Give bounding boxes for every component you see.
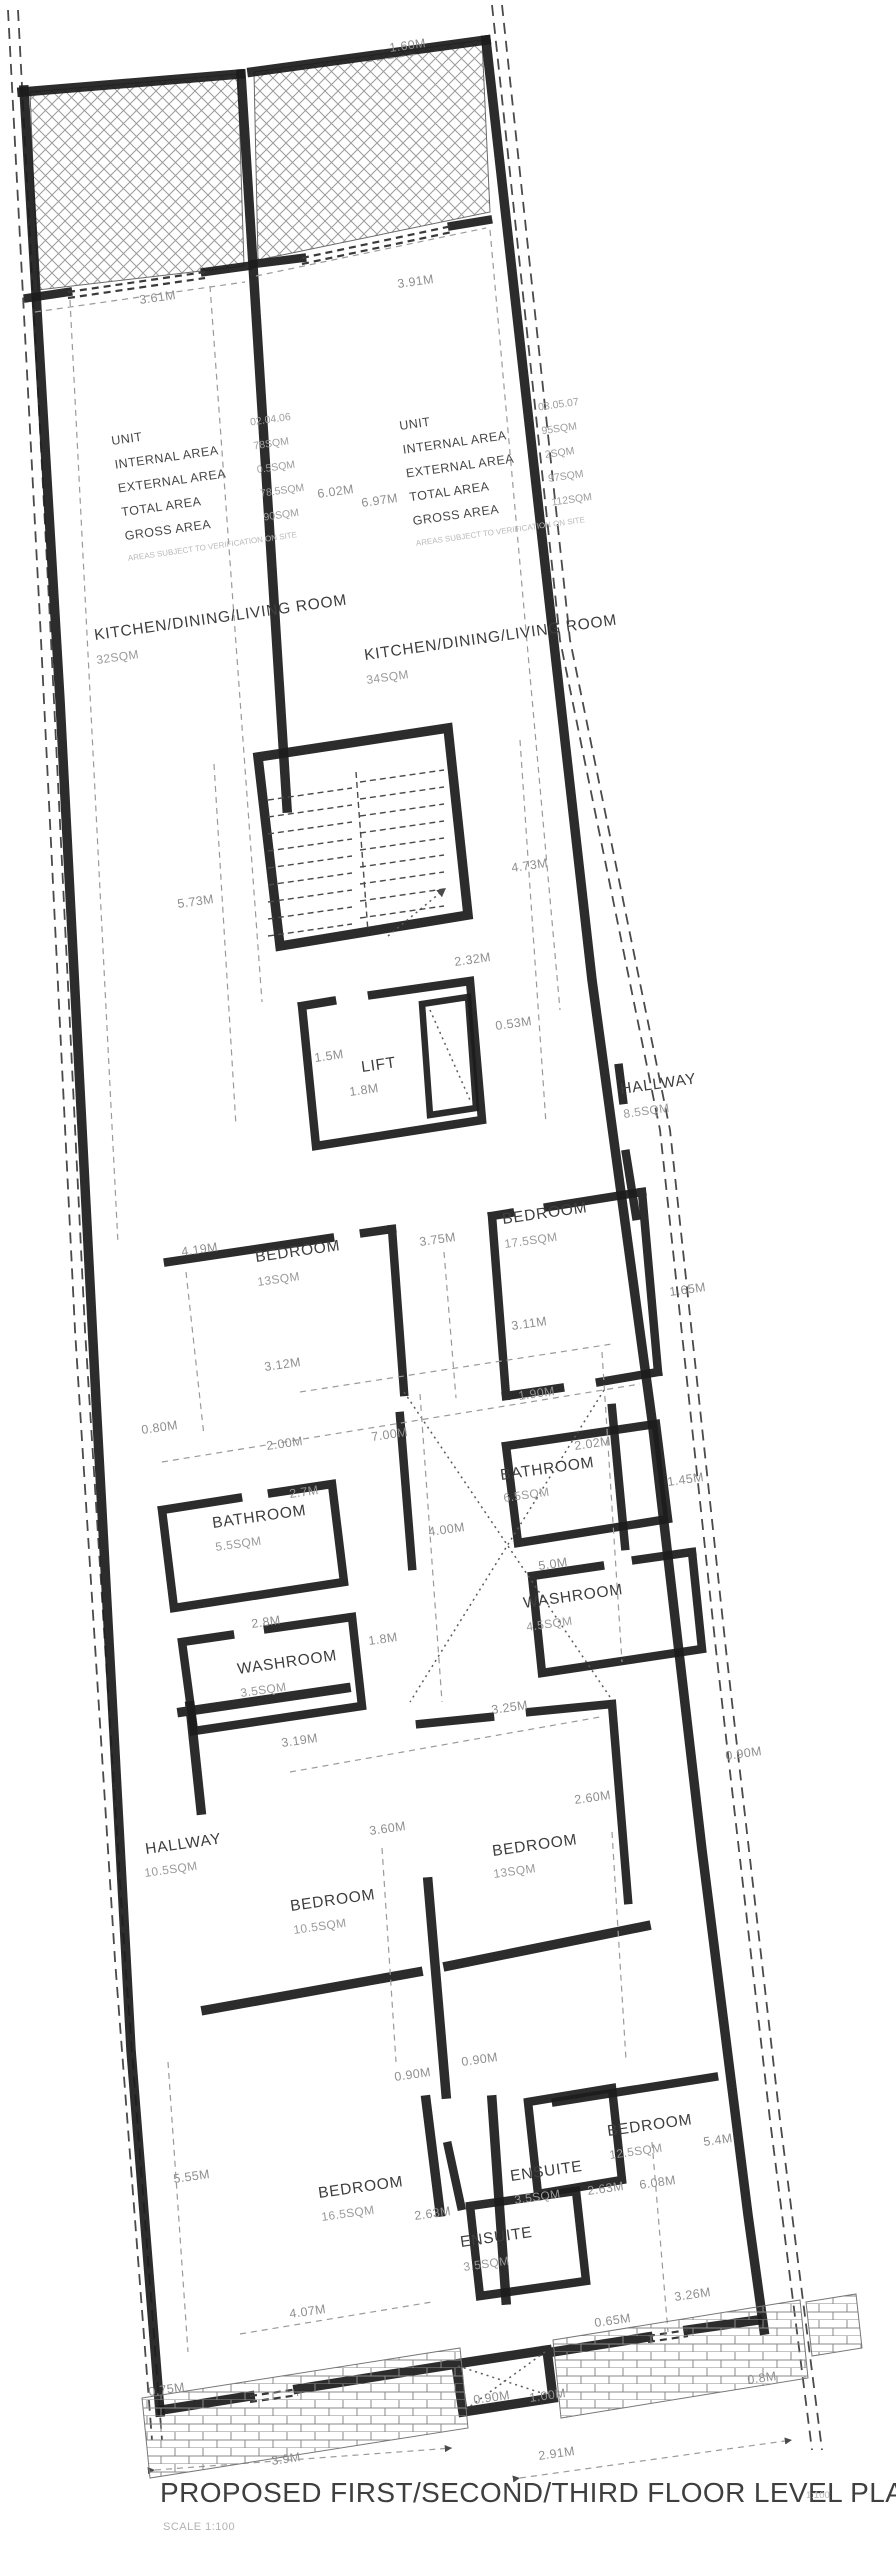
room-label: BEDROOM — [606, 2111, 693, 2140]
unit-area-table-right: UNIT03.05.07INTERNAL AREA95SQMEXTERNAL A… — [398, 394, 595, 548]
stair-tread-line — [268, 856, 352, 868]
table-row-value: 02.04.06 — [249, 411, 291, 429]
stair-tread-line — [360, 855, 444, 867]
right-party-wall — [486, 40, 764, 2330]
dimension-label: 3.12M — [263, 1355, 301, 1374]
room-area-label: 32SQM — [95, 647, 139, 667]
dimension-label: 0.53M — [494, 1014, 532, 1033]
room-area-label: 3.5SQM — [513, 2187, 561, 2207]
stair-tread-line — [360, 821, 444, 833]
dimension-label: 2.00M — [265, 1434, 303, 1453]
brick-wall-right — [553, 2300, 808, 2418]
hallway-lower-walls — [182, 1688, 346, 1810]
table-row-label: EXTERNAL AREA — [117, 466, 227, 495]
table-row-label: GROSS AREA — [412, 502, 500, 528]
unit-area-tables: UNIT02.04.06INTERNAL AREA78SQMEXTERNAL A… — [110, 394, 595, 563]
dimension-label: 2.91M — [537, 2444, 575, 2463]
room-area-label: 8.5SQM — [622, 1101, 670, 1121]
room-label: KITCHEN/DINING/LIVING ROOM — [93, 592, 348, 644]
dimension-label: 3.60M — [368, 1819, 406, 1838]
room-area-label: 13SQM — [256, 1269, 300, 1289]
room-label: HALLWAY — [144, 1830, 222, 1858]
stair-divider — [356, 772, 368, 932]
table-row-label: INTERNAL AREA — [114, 443, 220, 471]
dimension-label: 4.73M — [510, 856, 548, 875]
dimension-label: 3.75M — [418, 1230, 456, 1249]
dimension-label: 1.5M — [313, 1047, 344, 1065]
dimension-label: 4.07M — [288, 2302, 326, 2321]
dimension-label: 1.8M — [348, 1081, 379, 1099]
table-row-label: UNIT — [398, 415, 431, 433]
dimension-label: 6.08M — [638, 2173, 676, 2192]
dimension-label: 6.97M — [360, 491, 398, 510]
stair-tread-line — [360, 770, 444, 782]
table-row-value: 03.05.07 — [537, 396, 579, 414]
stair-tread-line — [268, 822, 352, 834]
stair-tread-line — [268, 839, 352, 851]
dimension-label: 0.90M — [460, 2050, 498, 2069]
yard-hatch-left — [30, 74, 244, 290]
room-area-label: 10.5SQM — [143, 1859, 198, 1880]
table-row-label: INTERNAL AREA — [402, 428, 508, 456]
dimension-label: 3.19M — [280, 1731, 318, 1750]
room-label: BATHROOM — [211, 1502, 307, 1532]
dimension-label: 0.90M — [724, 1744, 762, 1763]
drawing-title: PROPOSED FIRST/SECOND/THIRD FLOOR LEVEL … — [160, 2477, 896, 2508]
room-label: KITCHEN/DINING/LIVING ROOM — [363, 612, 618, 664]
room-area-label: 17.5SQM — [503, 1230, 558, 1251]
room-label: BEDROOM — [289, 1886, 376, 1915]
dimension-label: 5.55M — [172, 2167, 210, 2186]
room-area-label: 34SQM — [365, 667, 409, 687]
dimension-label: 3.61M — [138, 288, 176, 307]
shaft-cross-2 — [410, 1390, 604, 1702]
stair-core-walls — [258, 728, 468, 946]
building-walls — [22, 40, 764, 2412]
dimension-label: 4.00M — [427, 1520, 465, 1539]
dimension-label: 3.91M — [396, 272, 434, 291]
title-block: PROPOSED FIRST/SECOND/THIRD FLOOR LEVEL … — [160, 2477, 896, 2533]
unit-area-table-left: UNIT02.04.06INTERNAL AREA78SQMEXTERNAL A… — [110, 408, 311, 562]
table-row-value: 112SQM — [551, 491, 593, 509]
stair-tread-line — [268, 788, 352, 800]
lift-door-line — [430, 1010, 470, 1100]
room-area-label: 10.5SQM — [292, 1916, 347, 1937]
dimension-label: 3.9M — [270, 2450, 301, 2468]
table-row-label: GROSS AREA — [124, 517, 212, 543]
dimension-label: 0.65M — [593, 2311, 631, 2330]
stair-tread-line — [360, 906, 444, 918]
stair-tread-line — [360, 838, 444, 850]
center-cross-wall — [428, 1882, 446, 2094]
room-label: BATHROOM — [499, 1454, 595, 1484]
room-label: WASHROOM — [236, 1647, 338, 1678]
dimension-label: 6.02M — [316, 482, 354, 501]
dimension-label: 0.90M — [393, 2065, 431, 2084]
washroom-left-walls — [182, 1617, 362, 1731]
room-label: LIFT — [360, 1054, 397, 1076]
floor-plan-drawing: UNIT02.04.06INTERNAL AREA78SQMEXTERNAL A… — [0, 0, 896, 2560]
dimension-label: 3.11M — [510, 1314, 547, 1333]
brick-wall-left — [142, 2348, 468, 2478]
dimension-label: 3.25M — [490, 1698, 528, 1717]
bedroom-band-bottom-wall — [206, 1926, 646, 2010]
stair-tread-line — [268, 890, 352, 902]
stair-tread-line — [360, 787, 444, 799]
room-label: BEDROOM — [317, 2173, 404, 2202]
stair-tread-line — [360, 872, 444, 884]
dimension-label: 5.73M — [176, 892, 214, 911]
dimension-label: 1.8M — [367, 1630, 398, 1648]
table-row-value: 78SQM — [253, 435, 290, 452]
table-row-value: 97SQM — [547, 468, 584, 485]
dimension-label: 5.4M — [702, 2131, 733, 2149]
table-row-label: EXTERNAL AREA — [405, 451, 515, 480]
table-row-label: TOTAL AREA — [408, 479, 490, 504]
stair-tread-line — [360, 889, 444, 901]
yard-hatch-areas — [30, 40, 490, 290]
room-area-label: 5.5SQM — [214, 1534, 262, 1554]
dimension-label: 2.7M — [288, 1483, 319, 1501]
stair-tread-line — [360, 804, 444, 816]
room-label: BEDROOM — [491, 1831, 578, 1860]
dimension-label: 3.26M — [673, 2285, 711, 2304]
dimension-label: 2.63M — [413, 2204, 451, 2223]
stair-tread-line — [268, 805, 352, 817]
stair-tread-line — [268, 873, 352, 885]
room-label: ENSUITE — [509, 2158, 583, 2185]
dimension-label: 0.80M — [140, 1418, 178, 1437]
dimension-label: 2.60M — [573, 1788, 611, 1807]
drawing-scale-note: SCALE 1:100 — [163, 2521, 235, 2533]
dimension-label: 2.32M — [453, 950, 491, 969]
dimension-label: 1.90M — [517, 1384, 555, 1403]
table-row-label: UNIT — [110, 430, 143, 448]
table-row-value: 2SQM — [544, 445, 575, 461]
ensuite-door-stub — [448, 2146, 461, 2206]
dimension-label: 0.8M — [746, 2369, 777, 2387]
dimension-label: 1.65M — [668, 1280, 706, 1299]
table-row-label: TOTAL AREA — [120, 494, 202, 519]
brick-wall-corner — [806, 2294, 862, 2356]
lift-shaft-walls — [422, 997, 476, 1115]
room-label: WASHROOM — [522, 1581, 624, 1612]
stair-treads — [268, 770, 444, 936]
drawing-sheet-note: 1:100 — [806, 2490, 830, 2501]
room-area-label: 13SQM — [492, 1861, 536, 1881]
room-area-label: 16.5SQM — [320, 2203, 375, 2224]
